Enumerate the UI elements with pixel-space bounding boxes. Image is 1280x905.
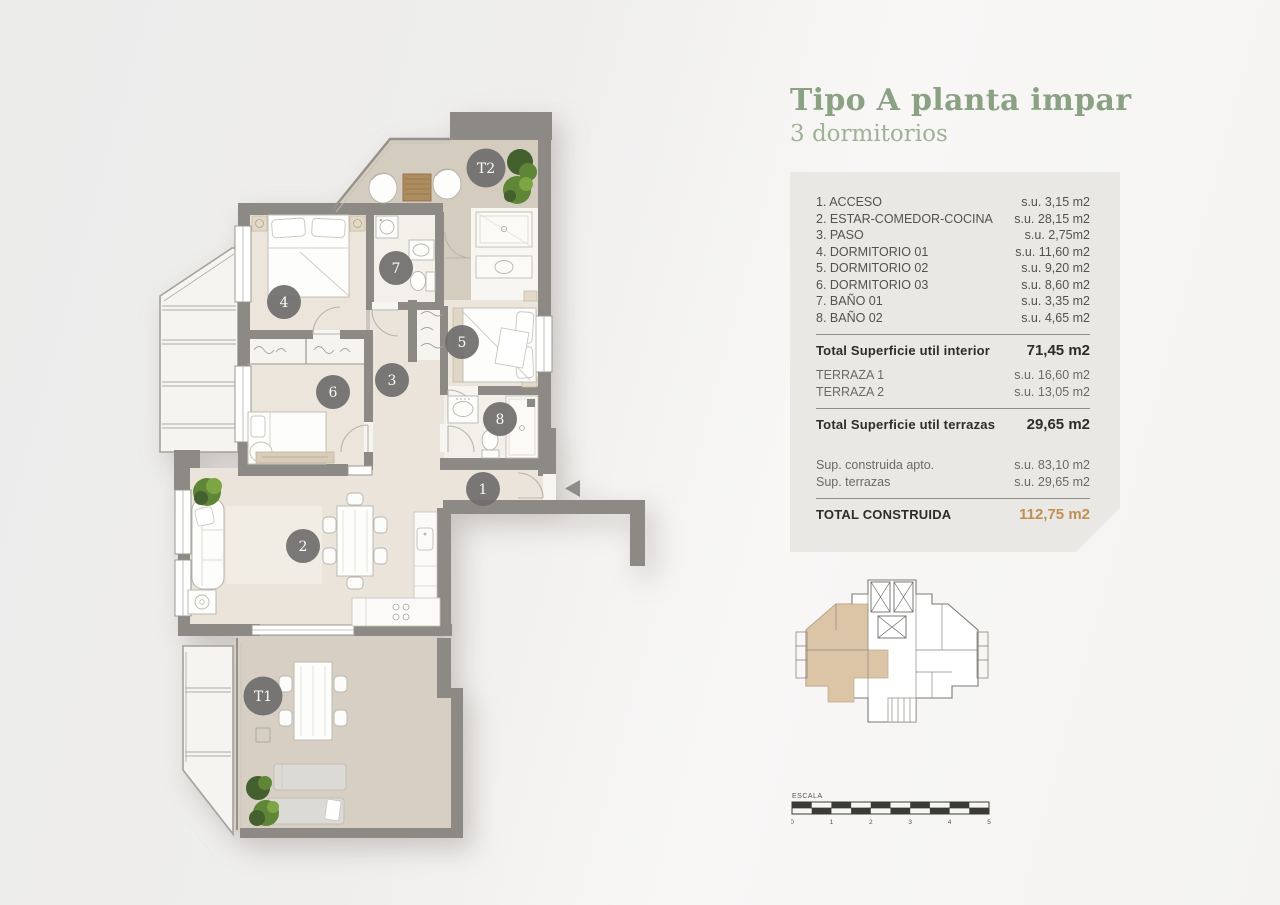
bed-double-icon bbox=[252, 215, 365, 297]
room-marker-6: 6 bbox=[316, 375, 350, 409]
floor-plan: T2 7 4 5 3 6 8 1 2 T1 bbox=[0, 0, 760, 905]
entrance-arrow-icon bbox=[565, 480, 580, 497]
scale-label: ESCALA bbox=[792, 793, 823, 800]
svg-text:1: 1 bbox=[479, 482, 488, 498]
total-built-row: TOTAL CONSTRUIDA 112,75 m2 bbox=[816, 499, 1090, 531]
svg-text:2: 2 bbox=[299, 539, 308, 555]
title-block: Tipo A planta impar 3 dormitorios bbox=[790, 84, 1131, 147]
room-marker-t1: T1 bbox=[244, 677, 283, 716]
svg-text:8: 8 bbox=[496, 412, 505, 428]
built-row: Sup. construida apto.s.u. 83,10 m2 bbox=[816, 457, 1090, 474]
svg-text:T1: T1 bbox=[254, 689, 272, 705]
room-marker-5: 5 bbox=[445, 325, 479, 359]
svg-text:4: 4 bbox=[948, 819, 952, 826]
room-marker-2: 2 bbox=[286, 529, 320, 563]
page-title: Tipo A planta impar bbox=[790, 84, 1131, 118]
svg-text:0: 0 bbox=[791, 819, 794, 826]
room-row: 6. DORMITORIO 03s.u. 8,60 m2 bbox=[816, 277, 1090, 294]
room-row: 2. ESTAR-COMEDOR-COCINAs.u. 28,15 m2 bbox=[816, 211, 1090, 228]
scale-ticks: 0 1 2 3 4 5 bbox=[791, 819, 991, 826]
terrace-row: TERRAZA 1s.u. 16,60 m2 bbox=[816, 367, 1090, 384]
sofa-icon bbox=[192, 499, 224, 589]
svg-text:7: 7 bbox=[392, 261, 401, 277]
scale-bar: ESCALA 0 1 2 3 4 5 bbox=[791, 791, 1001, 831]
sun-lounger bbox=[274, 764, 346, 790]
total-interior-row: Total Superficie util interior 71,45 m2 bbox=[816, 335, 1090, 367]
room-marker-8: 8 bbox=[483, 402, 517, 436]
neighbor-balconies-upper bbox=[160, 248, 238, 490]
built-row: Sup. terrazass.u. 29,65 m2 bbox=[816, 474, 1090, 491]
svg-text:T2: T2 bbox=[477, 161, 495, 177]
svg-text:5: 5 bbox=[458, 335, 467, 351]
room-marker-7: 7 bbox=[379, 251, 413, 285]
room-marker-t2: T2 bbox=[467, 149, 506, 188]
svg-text:1: 1 bbox=[830, 819, 834, 826]
svg-text:5: 5 bbox=[987, 819, 991, 826]
page-subtitle: 3 dormitorios bbox=[790, 121, 1131, 147]
room-row: 3. PASOs.u. 2,75m2 bbox=[816, 227, 1090, 244]
wardrobe5 bbox=[417, 302, 444, 360]
area-panel: 1. ACCESOs.u. 3,15 m2 2. ESTAR-COMEDOR-C… bbox=[790, 172, 1120, 552]
page: T2 7 4 5 3 6 8 1 2 T1 Tipo A planta impa… bbox=[0, 0, 1280, 905]
t2-furniture bbox=[369, 169, 461, 203]
wood-table-icon bbox=[403, 174, 431, 201]
svg-text:3: 3 bbox=[908, 819, 912, 826]
media-unit-icon bbox=[188, 590, 216, 614]
total-terraces-row: Total Superficie util terrazas 29,65 m2 bbox=[816, 409, 1090, 441]
svg-text:4: 4 bbox=[280, 295, 289, 311]
shower-room-fixtures bbox=[476, 212, 532, 278]
room-row: 1. ACCESOs.u. 3,15 m2 bbox=[816, 194, 1090, 211]
room-row: 7. BAÑO 01s.u. 3,35 m2 bbox=[816, 293, 1090, 310]
room-marker-4: 4 bbox=[267, 285, 301, 319]
scale-cells bbox=[792, 802, 989, 814]
bed-single-icon bbox=[248, 412, 334, 464]
svg-text:6: 6 bbox=[329, 385, 338, 401]
room-row: 5. DORMITORIO 02s.u. 9,20 m2 bbox=[816, 260, 1090, 277]
room-row: 8. BAÑO 02s.u. 4,65 m2 bbox=[816, 310, 1090, 327]
svg-text:2: 2 bbox=[869, 819, 873, 826]
neighbor-balconies-lower bbox=[183, 646, 233, 834]
svg-text:3: 3 bbox=[388, 373, 397, 389]
room-marker-3: 3 bbox=[375, 363, 409, 397]
key-plan bbox=[792, 574, 992, 734]
terrace-row: TERRAZA 2s.u. 13,05 m2 bbox=[816, 384, 1090, 401]
room-marker-1: 1 bbox=[466, 472, 500, 506]
room-row: 4. DORMITORIO 01s.u. 11,60 m2 bbox=[816, 244, 1090, 261]
